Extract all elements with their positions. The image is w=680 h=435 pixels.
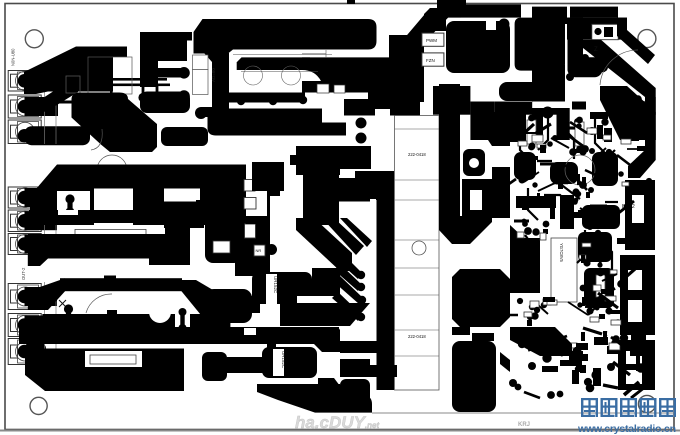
svg-text:N0N-U80: N0N-U80 [11, 48, 16, 66]
svg-text:NR: NR [256, 248, 262, 253]
svg-text:KRJ: KRJ [518, 422, 530, 428]
svg-text:FZN: FZN [426, 58, 435, 63]
svg-text:UR152C: UR152C [281, 351, 286, 369]
svg-text:UR152C: UR152C [273, 276, 278, 294]
svg-text:222-0418: 222-0418 [408, 152, 426, 157]
svg-text:OUT-2: OUT-2 [21, 267, 26, 280]
svg-text:222-0418: 222-0418 [408, 334, 426, 339]
svg-text:PWM: PWM [426, 38, 437, 43]
svg-text:AD=80: AD=80 [211, 68, 216, 82]
svg-text:www.crystalradio.cn: www.crystalradio.cn [577, 423, 676, 435]
svg-text:Z: Z [594, 47, 598, 53]
svg-text:YG7C8V5: YG7C8V5 [559, 243, 564, 263]
